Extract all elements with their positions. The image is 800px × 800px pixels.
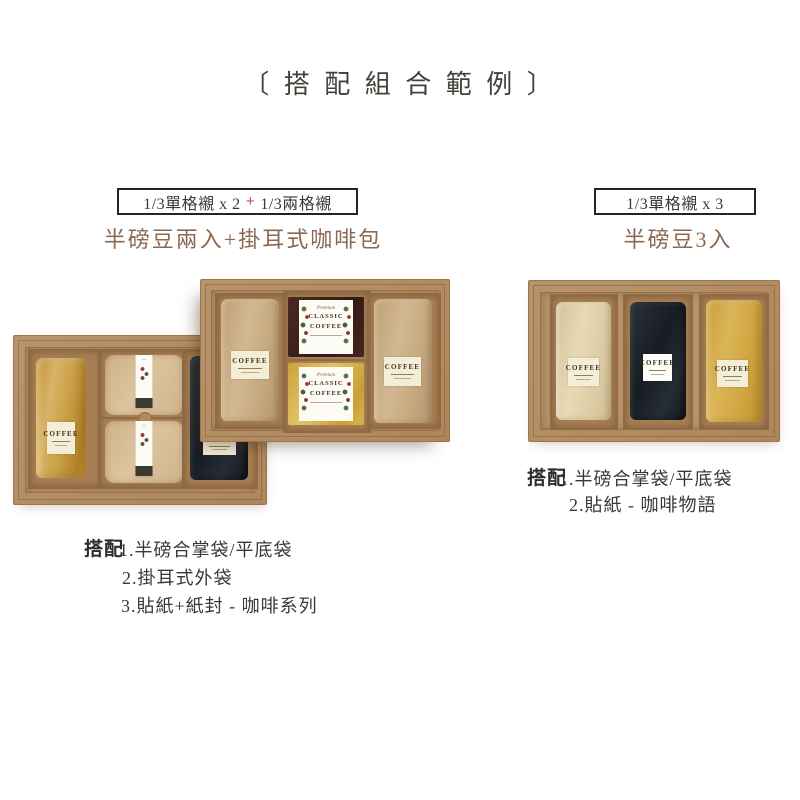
- strip-script-mark: ~: [143, 424, 146, 429]
- drip-packet-strip: ~: [136, 421, 153, 476]
- coffee-label-text: COFFEE: [385, 364, 421, 371]
- label-rule: [52, 441, 69, 442]
- label-rule: [723, 376, 742, 377]
- coffee-bag-label: COFFEE: [384, 357, 421, 386]
- label-rule-2: [55, 445, 68, 446]
- right-cell-1: COFFEE: [550, 294, 618, 430]
- combo-right-badge-text: 1/3單格襯 x 3: [626, 190, 723, 214]
- kraft-coffee-bag: COFFEE: [221, 299, 279, 421]
- combo-left-subtitle: 半磅豆兩入+掛耳式咖啡包: [58, 222, 428, 254]
- coffee-bag-label: COFFEE: [568, 358, 599, 386]
- coffee-label-text: COFFEE: [566, 365, 602, 372]
- pairing-item: 3.貼紙+紙封 - 咖啡系列: [121, 592, 318, 618]
- page-title: 〔 搭 配 組 合 範 例 〕: [0, 64, 800, 101]
- label-rule-2: [212, 449, 227, 450]
- combo-left-badge: 1/3單格襯 x 2 + 1/3兩格襯: [117, 188, 358, 215]
- combo-left-badge-part1: 1/3單格襯 x 2: [143, 190, 240, 214]
- classic-text: CLASSIC: [308, 312, 343, 322]
- label-rule: [649, 370, 667, 371]
- label-rule-2: [651, 374, 664, 375]
- label-rule-2: [576, 379, 590, 380]
- combo-right-badge: 1/3單格襯 x 3: [594, 188, 756, 215]
- label-rule: [238, 368, 262, 369]
- drip-packet-kraft-1: ~: [105, 355, 183, 415]
- coffee-branch-icon: [342, 305, 352, 349]
- coffee-bag-label: COFFEE: [231, 351, 269, 379]
- coffee-bag-label: COFFEE: [717, 360, 748, 387]
- classic-coffee-box-dark: Premium CLASSIC COFFEE: [288, 297, 364, 357]
- front-cell-right: COFFEE: [367, 293, 441, 429]
- gold-coffee-bag: COFFEE: [36, 358, 86, 478]
- pairing-item: 2.掛耳式外袋: [122, 564, 233, 590]
- front-cell-left: COFFEE: [215, 293, 287, 429]
- coffee-branch-icon: [139, 432, 149, 448]
- classic-coffee-label: Premium CLASSIC COFFEE: [299, 367, 353, 421]
- combo-left-badge-plus: +: [246, 193, 256, 211]
- coffee-bag-label: COFFEE: [643, 354, 672, 381]
- coffee-text: COFFEE: [310, 389, 342, 399]
- coffee-branch-icon: [300, 305, 310, 349]
- label-rule: [574, 375, 593, 376]
- kraft-coffee-bag: COFFEE: [374, 299, 432, 423]
- combo-right-subtitle: 半磅豆3入: [568, 222, 788, 254]
- label-rule: [391, 374, 414, 375]
- coffee-label-text: COFFEE: [43, 431, 79, 438]
- coffee-branch-icon: [139, 366, 149, 382]
- drip-packet-kraft-2: ~: [105, 421, 183, 483]
- giftbox-front: COFFEE Premium CLASSIC COFFEE: [200, 279, 450, 442]
- back-cell-middle: ~ ~: [98, 349, 190, 489]
- cream-coffee-bag: COFFEE: [556, 302, 611, 420]
- product-infographic: 〔 搭 配 組 合 範 例 〕 1/3單格襯 x 2 + 1/3兩格襯 半磅豆兩…: [0, 0, 800, 800]
- label-rule-2: [241, 372, 258, 373]
- coffee-text: COFFEE: [310, 322, 342, 332]
- classic-coffee-label: Premium CLASSIC COFFEE: [299, 300, 353, 354]
- coffee-branch-icon: [300, 372, 310, 416]
- coffee-branch-icon: [342, 372, 352, 416]
- right-cell-3: COFFEE: [699, 294, 769, 430]
- label-rule: [310, 335, 342, 336]
- pairing-item: 2.貼紙 - 咖啡物語: [569, 491, 717, 517]
- coffee-bag-label: COFFEE: [47, 422, 75, 454]
- coffee-label-text: COFFEE: [232, 358, 268, 365]
- front-cell-middle: Premium CLASSIC COFFEE Premium CLASSIC C…: [283, 291, 371, 433]
- label-rule: [310, 402, 342, 403]
- pairing-label-left: 搭配: [84, 534, 124, 561]
- back-cell-left: COFFEE: [28, 349, 104, 489]
- strip-script-mark: ~: [143, 358, 146, 363]
- cell-divider: [285, 359, 369, 361]
- right-cell-2: COFFEE: [623, 294, 693, 430]
- pairing-item: 1.半磅合掌袋/平底袋: [119, 536, 293, 562]
- combo-left-badge-part2: 1/3兩格襯: [260, 190, 331, 214]
- label-rule: [209, 446, 229, 447]
- strip-band: [136, 466, 153, 476]
- giftbox-right: COFFEE COFFEE COFFEE: [528, 280, 780, 442]
- classic-text: CLASSIC: [308, 379, 343, 389]
- black-coffee-bag: COFFEE: [630, 302, 686, 420]
- drip-packet-strip: ~: [136, 355, 153, 408]
- label-rule-2: [394, 378, 411, 379]
- gold-coffee-bag: COFFEE: [706, 300, 762, 422]
- coffee-bag-label: [203, 440, 236, 455]
- label-rule-2: [725, 380, 739, 381]
- coffee-label-text: COFFEE: [640, 360, 676, 367]
- coffee-label-text: COFFEE: [715, 366, 751, 373]
- strip-band: [136, 398, 153, 408]
- classic-coffee-box-gold: Premium CLASSIC COFFEE: [288, 363, 364, 425]
- pairing-item: 1.半磅合掌袋/平底袋: [559, 465, 733, 491]
